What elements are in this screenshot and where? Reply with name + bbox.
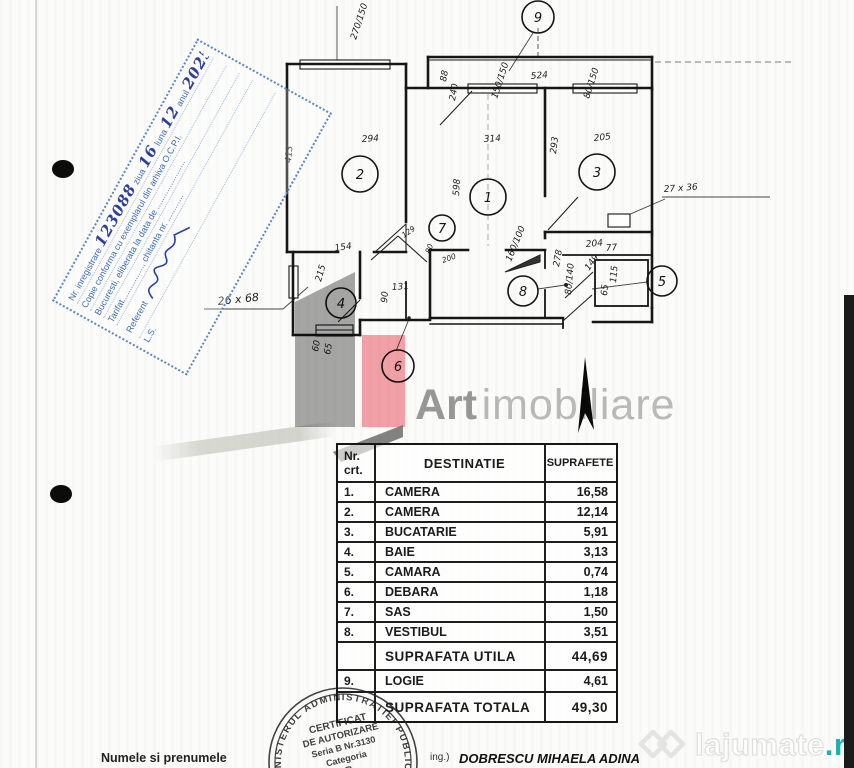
certification-stamp: MINISTERUL ADMINISTRATIEI PUBLICE CERTIF… [250,678,450,768]
site-watermark: lajumate.ro [633,726,854,764]
stamp-center-text: CERTIFICAT DE AUTORIZARE Seria B Nr.3130… [299,709,389,768]
scanned-document-page: Nr. inregistrare 123088 ziua 16 luna 12 … [0,0,854,768]
table-row: 2.CAMERA12,14 [338,501,616,521]
logo-imobiliare-text: imobiliare [482,381,676,429]
table-row: 1.CAMERA16,58 [338,481,616,501]
svg-text:B: B [345,765,355,768]
footer-label: Numele si prenumele [101,751,227,765]
header-nr-crt: Nr. crt. [338,449,374,477]
lajumate-text: lajumate.ro [695,727,854,763]
agency-logo: Art imobiliare [415,381,676,430]
watermark-pink-bar [362,335,405,427]
table-row: 4.BAIE3,13 [338,541,616,561]
logo-art-text: Art [415,381,477,429]
watermark-gray-bar [295,272,355,427]
table-row: 8.VESTIBUL3,51 [338,621,616,641]
footer-name: DOBRESCU MIHAELA ADINA [459,751,640,766]
table-row: 3.BUCATARIE5,91 [338,521,616,541]
header-destinatie: DESTINATIE [374,445,544,481]
punch-hole [50,485,72,503]
table-row: 5.CAMARA0,74 [338,561,616,581]
punch-hole [52,160,74,178]
lajumate-logo-icon [633,726,695,764]
table-row-suprafata-utila: SUPRAFATA UTILA44,69 [338,641,616,669]
scan-edge-strip [844,295,854,768]
header-suprafete: SUPRAFETE [544,445,616,481]
table-row: 6.DEBARA1,18 [338,581,616,601]
table-row: 7.SAS1,50 [338,601,616,621]
table-header-row: Nr. crt. DESTINATIE SUPRAFETE [338,445,616,481]
